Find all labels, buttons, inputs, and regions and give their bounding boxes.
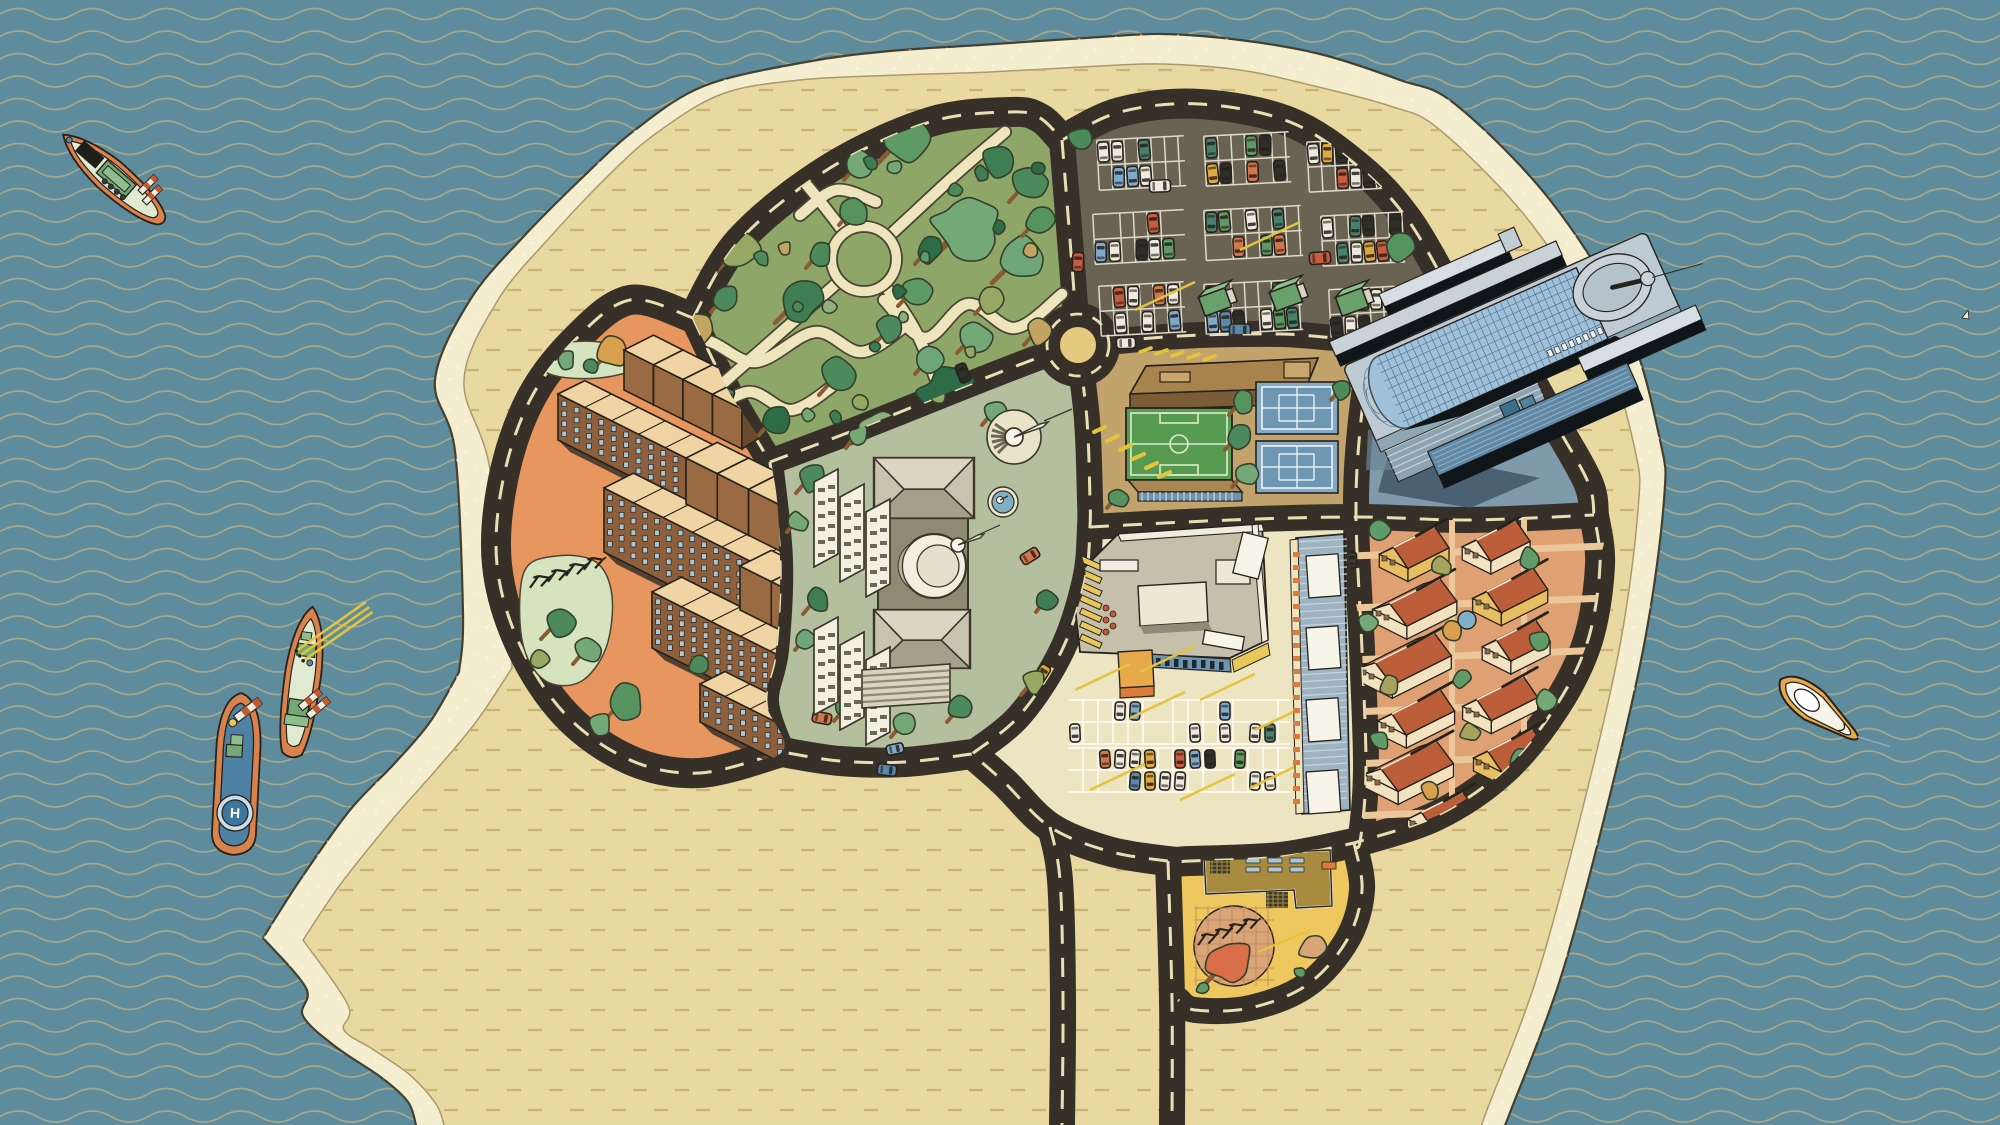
svg-text:H: H [230,805,241,822]
